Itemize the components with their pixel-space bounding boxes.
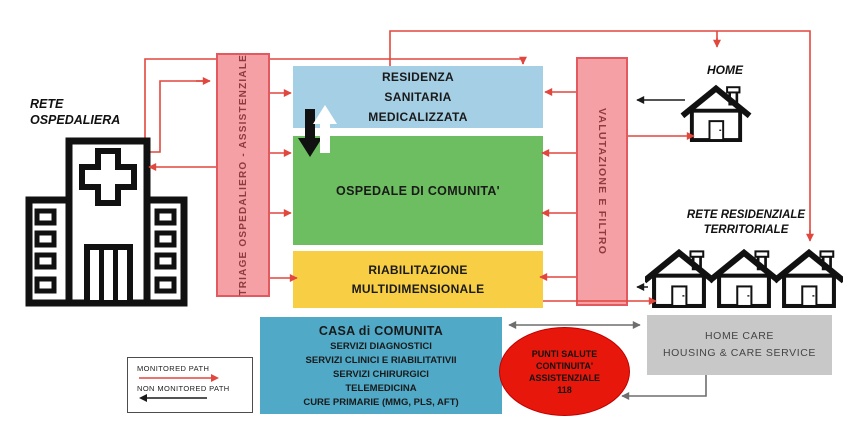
riabilitazione-line2: MULTIDIMENSIONALE: [352, 280, 485, 299]
non-monitored-arrow-icon: [137, 393, 243, 403]
riabilitazione-line1: RIABILITAZIONE: [368, 261, 467, 280]
rete-ospedaliera-line2: OSPEDALIERA: [30, 112, 140, 128]
territorial-house-icon: [645, 246, 713, 313]
residenza-box: RESIDENZA SANITARIA MEDICALIZZATA: [293, 66, 543, 128]
triage-label: TRIAGE OSPEDALIERO - ASSISTENZIALE: [238, 54, 249, 296]
punti-salute-ellipse: PUNTI SALUTE CONTINUITA' ASSISTENZIALE 1…: [499, 327, 630, 416]
home-label: HOME: [693, 63, 757, 77]
home-care-line2: HOUSING & CARE SERVICE: [663, 345, 816, 362]
riabilitazione-box: RIABILITAZIONE MULTIDIMENSIONALE: [293, 251, 543, 308]
home-care-box: HOME CARE HOUSING & CARE SERVICE: [647, 315, 832, 375]
legend-non-monitored-label: NON MONITORED PATH: [137, 383, 243, 393]
punti-salute-line1: PUNTI SALUTE: [532, 348, 598, 360]
rete-ospedaliera-label: RETE OSPEDALIERA: [30, 96, 140, 128]
residenza-line1: RESIDENZA: [382, 67, 454, 87]
territorial-house-icon: [775, 246, 843, 313]
punti-salute-line4: 118: [557, 384, 572, 396]
residenza-line3: MEDICALIZZATA: [368, 107, 467, 127]
rete-territoriale-line1: RETE RESIDENZIALE: [678, 208, 814, 223]
casa-item: SERVIZI DIAGNOSTICI: [330, 340, 432, 354]
punti-salute-line2: CONTINUITA': [536, 360, 593, 372]
triage-box: TRIAGE OSPEDALIERO - ASSISTENZIALE: [216, 53, 270, 297]
monitored-arrow-icon: [137, 373, 243, 383]
casa-item: TELEMEDICINA: [345, 382, 416, 396]
punti-salute-line3: ASSISTENZIALE: [529, 372, 600, 384]
casa-item: CURE PRIMARIE (MMG, PLS, AFT): [303, 396, 458, 410]
rete-territoriale-label: RETE RESIDENZIALE TERRITORIALE: [678, 208, 814, 238]
hospital-icon: [25, 137, 188, 312]
valutazione-label: VALUTAZIONE E FILTRO: [596, 108, 608, 255]
casa-item: SERVIZI CLINICI E RIABILITATIVII: [306, 354, 457, 368]
ospedale-box: OSPEDALE DI COMUNITA': [293, 136, 543, 245]
territorial-house-icon: [710, 246, 778, 313]
home-care-line1: HOME CARE: [705, 328, 774, 345]
casa-di-comunita-box: CASA di COMUNITA SERVIZI DIAGNOSTICI SER…: [260, 317, 502, 414]
casa-title: CASA di COMUNITA: [319, 322, 443, 340]
ospedale-label: OSPEDALE DI COMUNITA': [336, 184, 500, 198]
arrow-homecare-to-punti-salute: [622, 375, 706, 396]
home-house-icon: [680, 82, 752, 147]
diagram-canvas: TRIAGE OSPEDALIERO - ASSISTENZIALE RESID…: [0, 0, 864, 441]
residenza-line2: SANITARIA: [384, 87, 451, 107]
legend-monitored-label: MONITORED PATH: [137, 363, 243, 373]
legend-box: MONITORED PATH NON MONITORED PATH: [127, 357, 253, 413]
casa-item: SERVIZI CHIRURGICI: [333, 368, 429, 382]
rete-territoriale-line2: TERRITORIALE: [678, 223, 814, 238]
valutazione-box: VALUTAZIONE E FILTRO: [576, 57, 628, 306]
rete-ospedaliera-line1: RETE: [30, 96, 140, 112]
